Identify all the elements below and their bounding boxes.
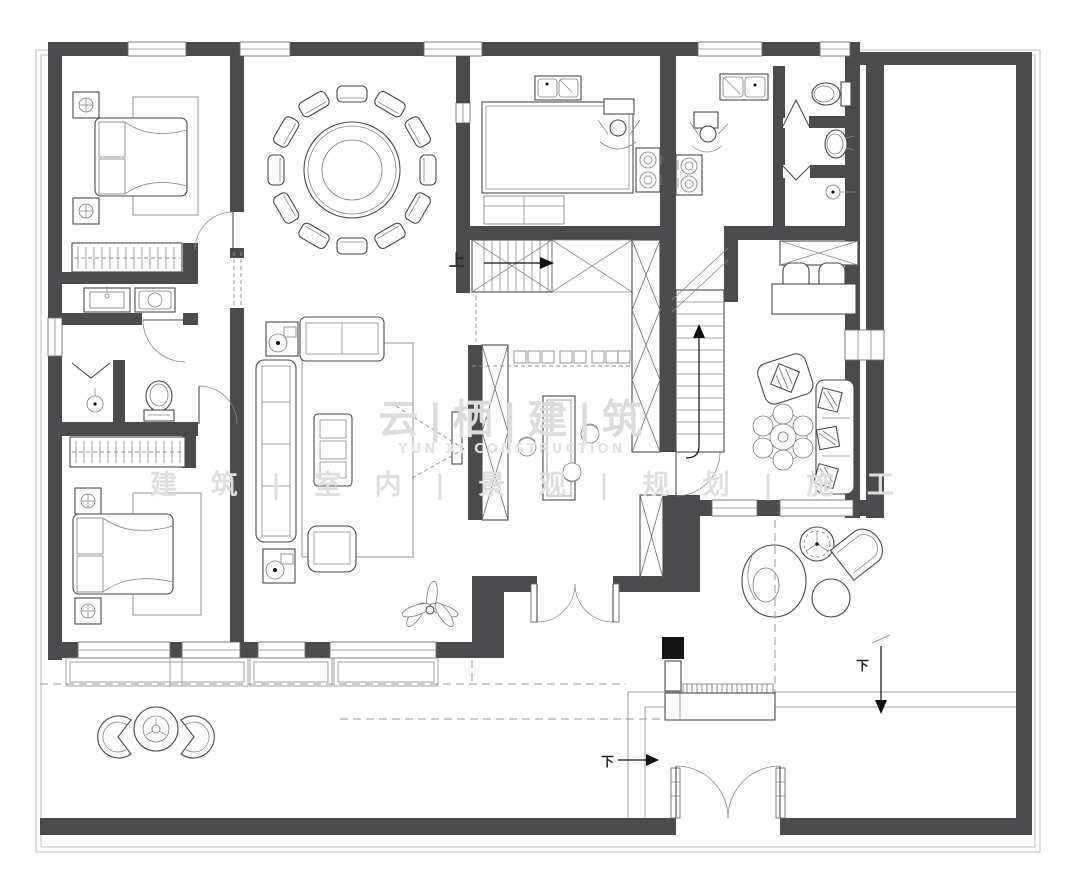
speaker-icon [263, 549, 295, 583]
toilet-icon [812, 82, 851, 106]
window-icon [48, 318, 62, 356]
column-icon [662, 637, 684, 659]
round-dining-table-icon [304, 122, 400, 218]
scullery [676, 74, 768, 195]
folding-door-icon [783, 166, 810, 180]
double-swing-door-icon [671, 766, 785, 818]
dining-chair-icon [403, 191, 432, 225]
armchair-icon [755, 351, 816, 406]
window-icon [424, 42, 482, 56]
window-icon [845, 330, 884, 360]
window-icon [330, 642, 436, 658]
window-icon [712, 500, 757, 516]
dining-chair-icon [337, 86, 367, 102]
wardrobe-hanger-icon [70, 437, 185, 467]
double-bed-icon [95, 118, 187, 196]
fabric-sofa-icon [256, 360, 296, 542]
bay-window-icon [66, 658, 248, 686]
dining-room [268, 86, 436, 254]
watermark-title-cn: 云|栖|建|筑 [378, 397, 652, 444]
planter-box-icon [665, 661, 681, 691]
throw-pillow-icon [816, 426, 839, 449]
dining-chair-icon [420, 155, 436, 185]
speaker-icon [266, 322, 298, 356]
window-icon [698, 42, 762, 56]
toilet-icon [144, 381, 174, 421]
writing-desk-icon [772, 284, 856, 314]
wardrobe-hanger-icon [72, 243, 182, 272]
dining-chair-icon [297, 221, 331, 250]
bay-windows [66, 658, 438, 686]
gas-stove-icon [636, 148, 661, 192]
window-icon [456, 103, 470, 123]
patio-chair-icon [181, 716, 214, 758]
stairs-down-label-right: 下 [856, 659, 869, 674]
loveseat-icon [300, 317, 384, 361]
dining-chair-icon [373, 221, 407, 250]
floor-plan-page: 上 [0, 0, 1080, 881]
window-icon [128, 42, 186, 56]
patio-chair-icon [98, 716, 131, 758]
dining-chair-icon [272, 191, 301, 225]
throw-pillow-icon [818, 388, 842, 412]
pillow-icon [77, 556, 103, 592]
double-sink-icon [535, 76, 581, 100]
spoke-table-icon [800, 527, 834, 561]
dining-chair-icon [272, 115, 301, 149]
direction-arrow-icon [484, 257, 554, 269]
folding-door-icon [783, 100, 809, 126]
terrace-lounge [742, 523, 889, 617]
staircase-main [672, 248, 728, 458]
lazy-susan-icon [322, 140, 382, 200]
double-bed-icon [73, 514, 173, 594]
dining-chair-icon [297, 90, 331, 119]
shower-head-icon [87, 388, 103, 412]
patio [98, 707, 215, 758]
stairs-down-label-left: 下 [601, 755, 614, 770]
dining-chair-icon [268, 155, 284, 185]
dining-chair-icon [373, 90, 407, 119]
egg-chair-icon [742, 545, 806, 617]
dining-chair-icon [403, 115, 432, 149]
single-swing-door-icon [143, 320, 185, 362]
bedroom-2 [70, 437, 201, 624]
kitchen [482, 76, 661, 224]
floor-plan-canvas: 上 [0, 0, 1080, 881]
window-icon [182, 642, 240, 658]
watermark-title-en: YUN XI CONSTRUCTION [397, 442, 625, 457]
gas-stove-icon [676, 155, 702, 195]
nightstand-icon [73, 92, 99, 118]
study [772, 241, 858, 314]
nightstand-icon [75, 488, 101, 514]
window-icon [258, 642, 305, 658]
cook-figure-icon [690, 112, 728, 152]
flower-side-table-icon [753, 404, 813, 470]
window-icon [240, 42, 290, 56]
pillow-icon [77, 518, 103, 554]
window-icon [78, 642, 170, 658]
curved-lounge-chair-icon [830, 523, 889, 581]
dining-chair-icon [337, 238, 367, 254]
patio-table-icon [134, 707, 178, 751]
plant-icon [401, 581, 460, 629]
bay-window-icon [250, 658, 332, 686]
bay-window-icon [334, 658, 438, 686]
stairs-up-label: 上 [449, 251, 465, 270]
direction-arrow-icon [686, 324, 705, 458]
double-sink-icon [720, 74, 768, 100]
sideboard-icon [780, 241, 858, 265]
bar-counter [472, 351, 632, 366]
bedroom-1 [72, 92, 198, 272]
nightstand-icon [73, 198, 99, 224]
double-swing-door-icon [531, 584, 619, 622]
single-swing-door-icon [195, 212, 233, 250]
watermark-tagline-cn: 建 筑 | 室 内 | 景 观 | 规 划 | 施 工 [150, 469, 906, 501]
pillow-icon [99, 122, 125, 157]
direction-arrow-icon [618, 754, 659, 766]
washing-machine-icon [135, 288, 175, 312]
window-icon [780, 500, 853, 516]
vanity-sink-icon [84, 286, 130, 312]
ottoman-icon [812, 579, 850, 617]
pillow-icon [99, 159, 125, 194]
bathroom-1 [84, 286, 175, 421]
window-icon [820, 42, 850, 56]
direction-arrow-icon [872, 635, 890, 714]
folding-door-icon [72, 363, 110, 378]
nightstand-icon [75, 598, 101, 624]
closet-lower [640, 495, 663, 578]
storage-cabinet-icon [484, 196, 564, 224]
staircase-up: 上 [449, 240, 632, 292]
armchair-icon [308, 526, 356, 572]
